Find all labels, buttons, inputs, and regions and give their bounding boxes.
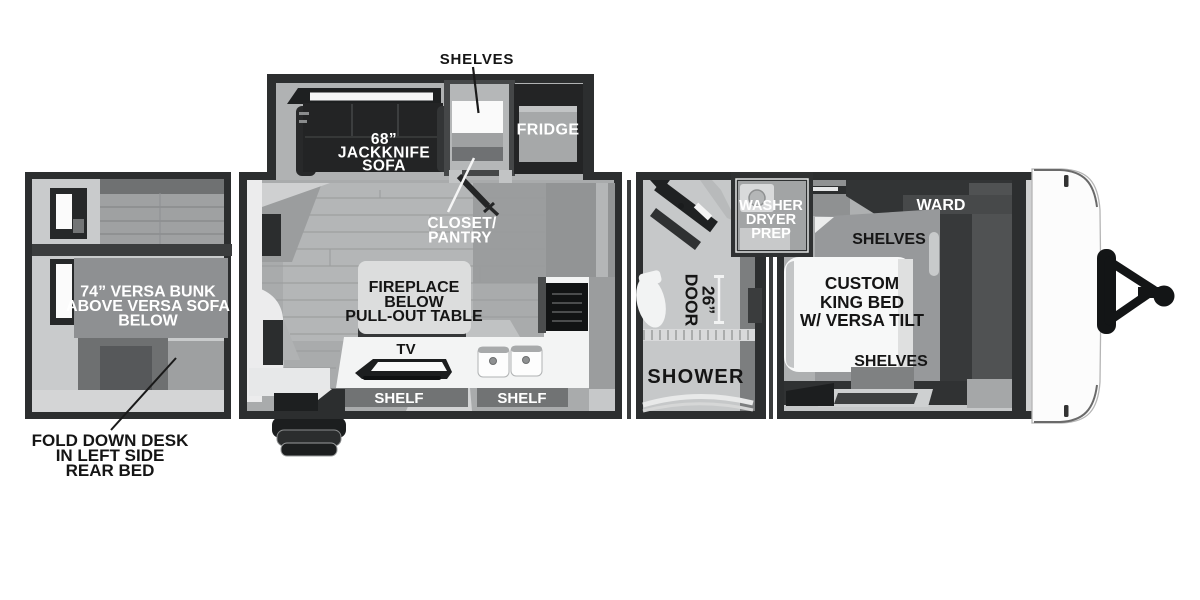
svg-text:PREP: PREP xyxy=(751,226,791,242)
svg-text:PANTRY: PANTRY xyxy=(428,230,492,247)
svg-text:SHELF: SHELF xyxy=(497,390,546,407)
svg-text:W/ VERSA TILT: W/ VERSA TILT xyxy=(800,310,925,330)
svg-text:PULL-OUT TABLE: PULL-OUT TABLE xyxy=(345,308,483,325)
svg-text:SOFA: SOFA xyxy=(362,158,406,175)
svg-text:TV: TV xyxy=(396,341,415,358)
svg-text:SHELF: SHELF xyxy=(374,390,423,407)
svg-text:BELOW: BELOW xyxy=(118,313,178,330)
svg-text:CUSTOM: CUSTOM xyxy=(825,273,899,293)
svg-text:KING BED: KING BED xyxy=(820,292,904,312)
svg-text:SHELVES: SHELVES xyxy=(852,231,926,248)
svg-text:SHOWER: SHOWER xyxy=(647,366,744,388)
svg-text:FRIDGE: FRIDGE xyxy=(517,122,580,139)
svg-text:REAR BED: REAR BED xyxy=(66,461,155,480)
svg-text:SHELVES: SHELVES xyxy=(440,51,515,68)
